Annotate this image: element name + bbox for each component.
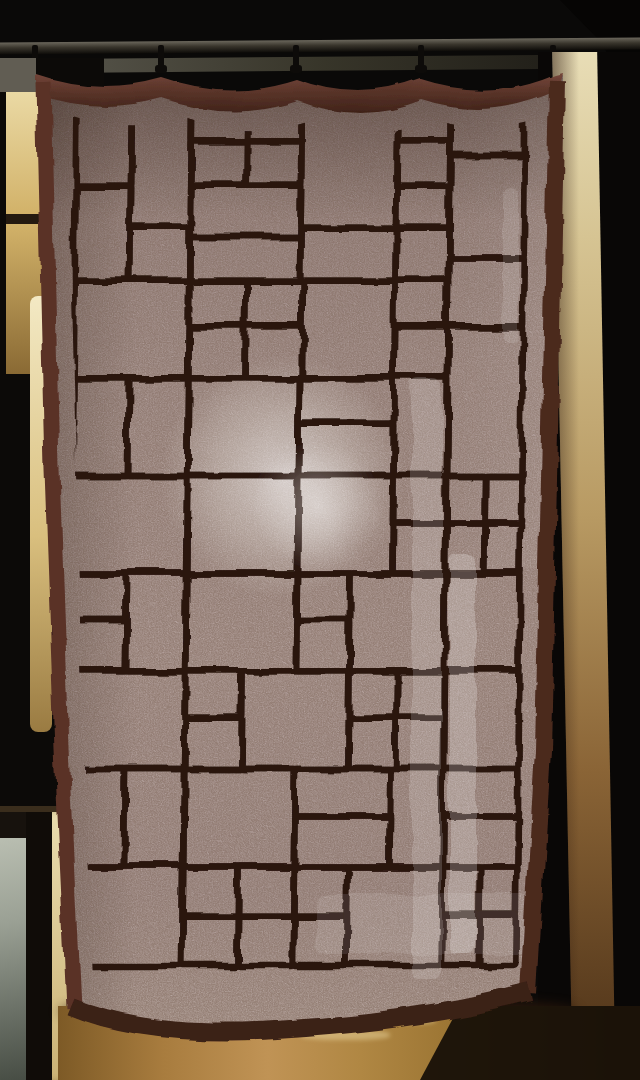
- light-streak: [500, 185, 516, 340]
- curtain-body: [14, 48, 594, 1053]
- curtain: [14, 48, 594, 1053]
- light-streak: [314, 893, 529, 953]
- light-streak: [410, 378, 440, 978]
- light-glow-core: [251, 439, 379, 567]
- photo-scene: { "scene": { "type": "photograph", "subj…: [0, 0, 640, 1080]
